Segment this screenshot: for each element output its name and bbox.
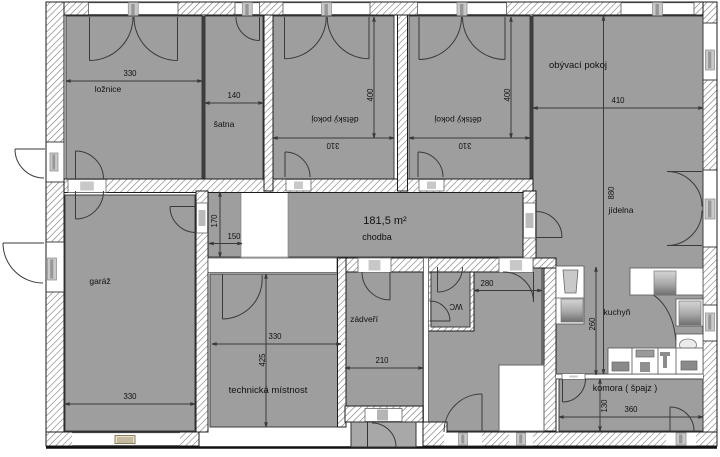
svg-text:210: 210 (375, 356, 389, 365)
svg-text:130: 130 (600, 399, 609, 413)
svg-text:zádveří: zádveří (350, 314, 379, 324)
svg-text:330: 330 (123, 392, 137, 401)
svg-text:jídelna: jídelna (607, 205, 633, 215)
svg-text:šatna: šatna (214, 119, 235, 129)
svg-text:garáž: garáž (89, 276, 110, 286)
svg-text:280: 280 (480, 279, 494, 288)
svg-text:chodba: chodba (362, 232, 392, 242)
svg-text:WC: WC (449, 302, 463, 311)
svg-text:dětský pokoj: dětský pokoj (434, 115, 481, 125)
svg-text:310: 310 (326, 141, 340, 150)
svg-text:dětský pokoj: dětský pokoj (311, 115, 358, 125)
svg-text:260: 260 (588, 317, 597, 331)
svg-text:330: 330 (268, 332, 282, 341)
svg-text:181,5 m²: 181,5 m² (363, 215, 407, 227)
svg-text:komora ( špajz ): komora ( špajz ) (593, 383, 658, 393)
svg-text:425: 425 (258, 353, 267, 367)
svg-text:360: 360 (624, 405, 638, 414)
svg-text:170: 170 (210, 214, 219, 228)
svg-text:technická místnost: technická místnost (229, 385, 308, 396)
svg-text:410: 410 (611, 96, 625, 105)
svg-text:400: 400 (503, 88, 512, 102)
svg-text:obývací pokoj: obývací pokoj (549, 60, 607, 71)
svg-text:310: 310 (458, 141, 472, 150)
svg-text:140: 140 (227, 91, 241, 100)
svg-text:400: 400 (366, 88, 375, 102)
svg-text:150: 150 (227, 232, 241, 241)
svg-text:330: 330 (123, 69, 137, 78)
svg-text:kuchyň: kuchyň (604, 307, 631, 317)
svg-text:ložnice: ložnice (95, 84, 122, 94)
svg-text:880: 880 (607, 186, 616, 200)
